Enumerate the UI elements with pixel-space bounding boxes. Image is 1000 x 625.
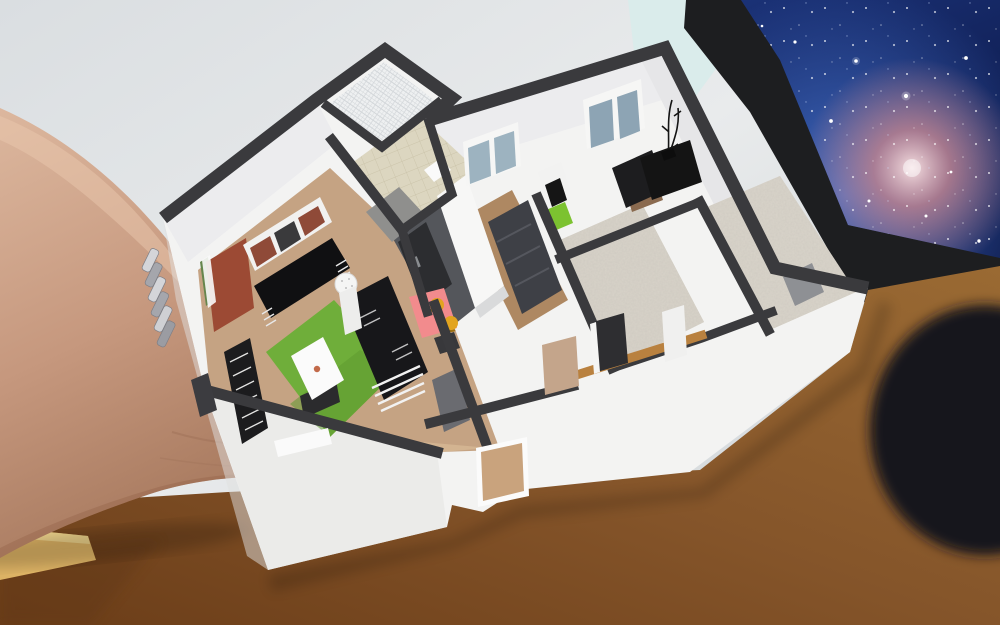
interior-door-tan — [542, 336, 579, 395]
window-2-pane-b — [617, 90, 640, 139]
ar-floorplan-photo — [0, 0, 1000, 625]
table-decor — [314, 366, 320, 372]
front-door — [481, 443, 524, 501]
interior-door-white — [662, 305, 687, 362]
window-2-pane-a — [589, 99, 614, 148]
